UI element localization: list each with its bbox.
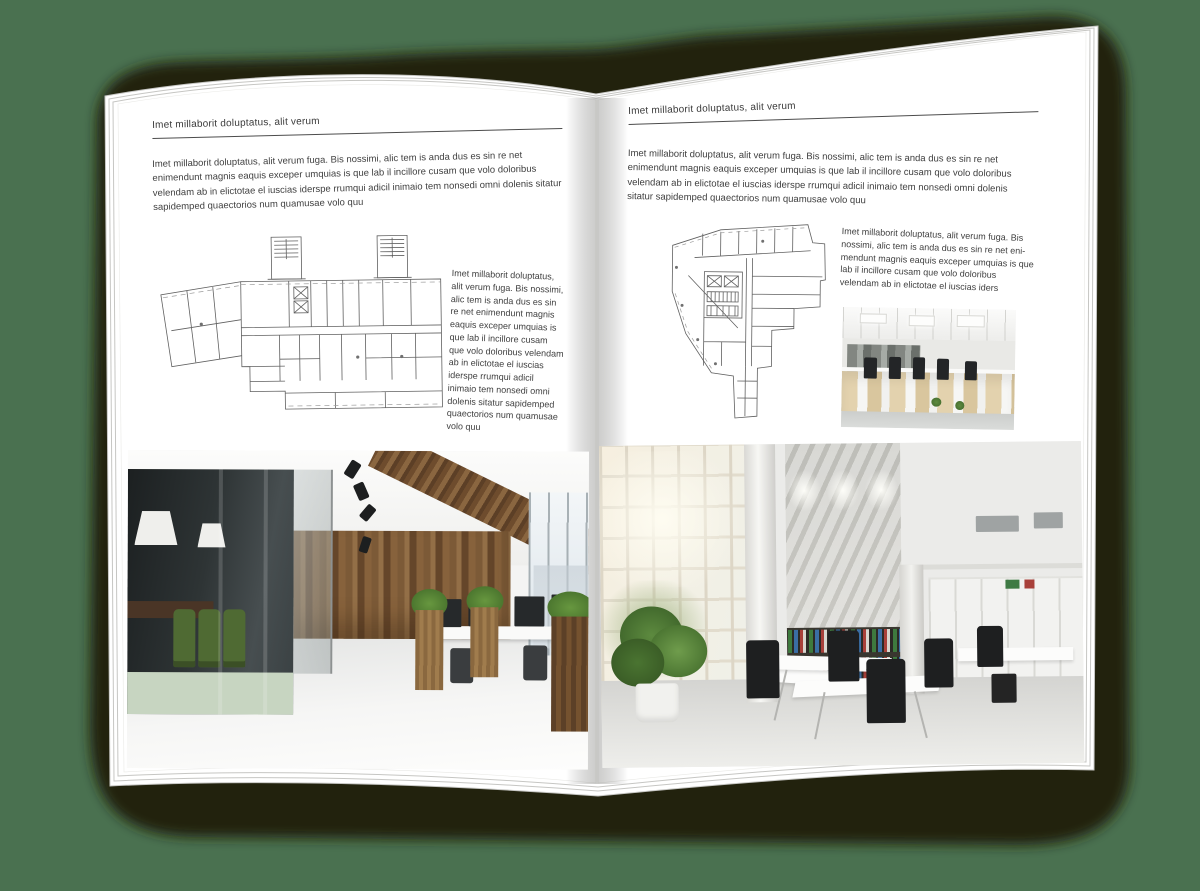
ceiling-light (957, 315, 985, 327)
left-page-side-text: Imet millaborit doluptatus, alit verum f… (446, 267, 567, 437)
office-chair (524, 645, 547, 680)
wood-planter (551, 617, 588, 732)
office-chair (450, 648, 473, 683)
office-chair (746, 641, 780, 699)
floor-plan-walls (671, 223, 826, 419)
mezzanine (898, 441, 1082, 570)
air-vent (976, 516, 1020, 533)
magazine-spread-mockup: Imet millaborit doluptatus, alit verum I… (0, 0, 1200, 891)
office-chair (977, 625, 1004, 667)
left-page-photo (127, 450, 589, 770)
plant-pot (635, 683, 679, 722)
desk-plant (955, 401, 964, 410)
ceiling-light (908, 315, 934, 326)
ceiling-light (860, 313, 886, 324)
right-page-intro-paragraph: Imet millaborit doluptatus, alit verum f… (627, 147, 1036, 212)
waste-bin (992, 673, 1016, 702)
wood-planter (471, 607, 499, 677)
desk (958, 647, 1074, 661)
floor-plan-window-ticks (673, 226, 806, 370)
green-chair (199, 609, 221, 668)
meeting-room-floor (127, 672, 293, 714)
floor-plan-drawing-irregular (641, 215, 831, 425)
left-page-intro-paragraph: Imet millaborit doluptatus, alit verum f… (152, 148, 567, 216)
office-chair (913, 357, 925, 379)
monitor (515, 596, 545, 626)
office-chair (864, 358, 876, 379)
green-chair (174, 609, 196, 668)
wood-planter (415, 610, 443, 690)
glass-meeting-room (127, 469, 294, 714)
floor-plan-drawing-wide (148, 229, 451, 421)
wall-spotlight (787, 469, 821, 511)
floor-plan-columns (674, 239, 764, 366)
pendant-lamp (134, 511, 177, 545)
office-chair (888, 357, 900, 379)
office-chair (866, 659, 905, 724)
glass-reflection (218, 469, 223, 714)
right-page-large-photo (599, 441, 1084, 768)
air-vent (1034, 512, 1063, 528)
wall-spotlight (826, 469, 860, 511)
office-chair (965, 361, 977, 380)
left-floor-plan (148, 229, 451, 421)
floor-plan-walls (160, 235, 442, 411)
glass-partition (293, 470, 333, 674)
right-floor-plan (641, 215, 831, 425)
office-chair (924, 639, 953, 688)
sun-glare (599, 451, 755, 588)
wall-spotlight (864, 469, 898, 511)
right-page-side-text: Imet millaborit doluptatus, alit verum f… (840, 225, 1039, 296)
glass-reflection (263, 470, 268, 715)
first-aid-sign (1025, 580, 1035, 588)
exit-sign (1005, 580, 1020, 589)
office-chair (937, 359, 949, 380)
green-chair (223, 609, 245, 668)
right-page-small-photo (841, 307, 1016, 430)
office-chair (827, 630, 859, 682)
